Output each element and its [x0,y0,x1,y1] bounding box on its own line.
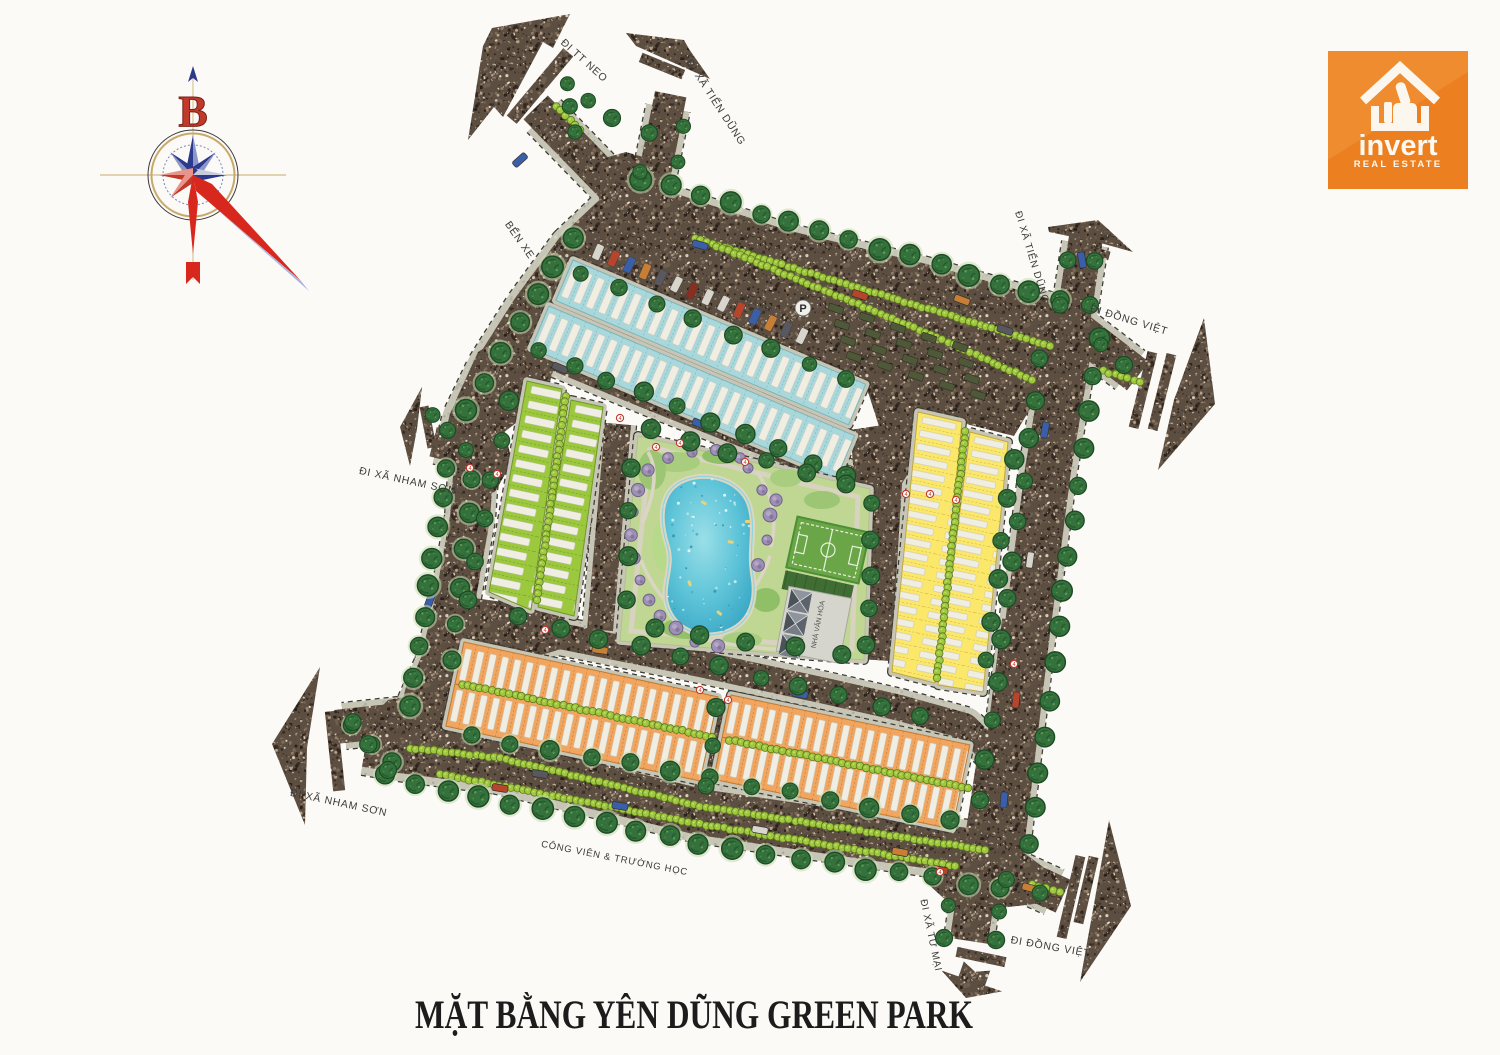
svg-text:B: B [178,87,207,136]
svg-text:invert: invert [1359,130,1438,162]
svg-text:4: 4 [618,416,621,422]
svg-text:4: 4 [698,688,701,694]
svg-text:P: P [799,303,806,315]
svg-text:4: 4 [928,492,931,498]
svg-text:4: 4 [543,628,546,634]
svg-text:4: 4 [954,498,957,504]
svg-text:4: 4 [1012,662,1015,668]
svg-text:MẶT BẰNG YÊN DŨNG GREEN PARK: MẶT BẰNG YÊN DŨNG GREEN PARK [415,992,973,1037]
svg-text:REAL ESTATE: REAL ESTATE [1354,159,1443,170]
svg-text:4: 4 [743,460,746,466]
svg-text:4: 4 [678,441,681,447]
svg-text:4: 4 [726,698,729,704]
svg-text:4: 4 [654,445,657,451]
svg-text:4: 4 [938,870,941,876]
svg-text:4: 4 [495,472,498,478]
svg-text:4: 4 [904,492,907,498]
svg-text:4: 4 [468,466,471,472]
